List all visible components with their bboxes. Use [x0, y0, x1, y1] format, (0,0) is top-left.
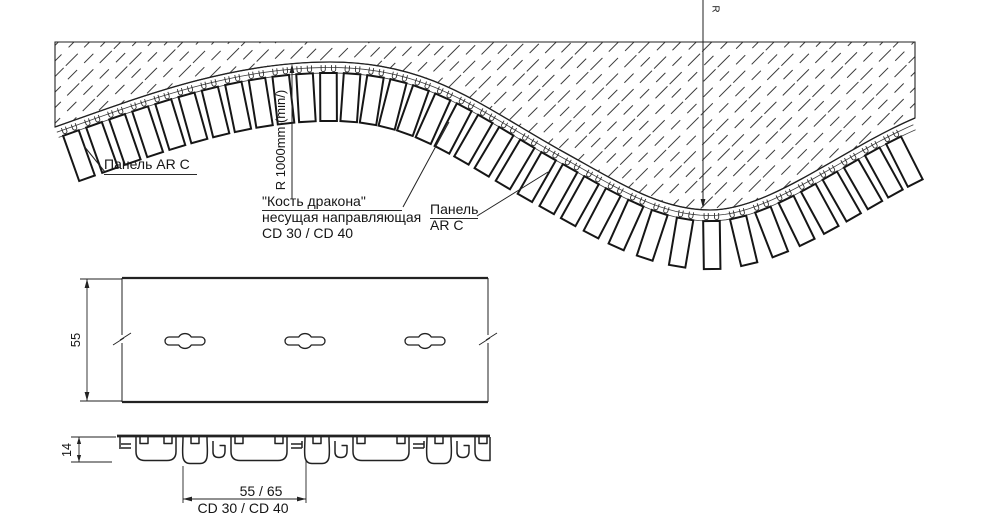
label-panel-left: Панель AR C	[104, 156, 197, 175]
panel	[637, 210, 668, 261]
clip-hook	[307, 65, 312, 72]
dimension-plan-height: 55	[68, 333, 84, 347]
clip-hook	[345, 65, 350, 72]
clip-hook	[71, 123, 77, 131]
clip-hook	[893, 130, 900, 138]
clip-hook	[402, 74, 408, 81]
clip-hook	[177, 88, 183, 95]
clip-hook	[468, 102, 475, 110]
clip-hook	[663, 206, 669, 213]
clip-hook	[131, 102, 137, 109]
clip-hook	[84, 118, 90, 126]
clip-hook	[639, 197, 646, 205]
clip-hook	[437, 87, 443, 95]
clip-hook	[617, 187, 624, 195]
label-rail-desc: несущая направляющая	[262, 209, 421, 225]
clip-hook	[776, 194, 783, 202]
clip-hook	[108, 110, 114, 118]
clip-hook	[235, 74, 240, 81]
clip-hook	[704, 213, 708, 220]
clip-hook	[249, 72, 254, 79]
clip-hook	[331, 65, 335, 72]
dimension-section-width: 55 / 65	[240, 483, 283, 499]
clip-hook	[424, 82, 430, 90]
panel	[669, 218, 693, 268]
clip-hook	[187, 85, 193, 92]
clip-hook	[141, 99, 147, 106]
clip-hook	[201, 82, 207, 89]
clip-hook	[729, 211, 735, 218]
clip-hook	[368, 67, 373, 74]
clip-hook	[785, 189, 792, 197]
label-radius-mark: R	[707, 5, 723, 12]
label-rail-type: CD 30 / CD 40	[262, 225, 421, 241]
clip-hook	[871, 141, 878, 149]
clip-hook	[164, 92, 170, 99]
label-panel-right: Панель AR C	[430, 201, 478, 233]
dimension-section-depth: 14	[59, 443, 75, 457]
clip-hook	[653, 203, 659, 210]
label-rail-block: "Кость дракона" несущая направляющая CD …	[262, 193, 421, 241]
clip-hook	[883, 135, 890, 143]
clip-hook	[415, 78, 421, 86]
clip-hook	[753, 203, 759, 211]
clip-hook	[61, 127, 67, 135]
panel	[340, 73, 360, 122]
clip-hook	[739, 208, 745, 215]
clip-hook	[117, 107, 123, 115]
clip-hook	[763, 200, 769, 208]
drawing-sheet: Панель AR C "Кость дракона" несущая напр…	[0, 0, 1000, 525]
panel	[730, 216, 757, 267]
clip-hook	[678, 210, 683, 217]
clip-hook	[458, 97, 465, 105]
clip-hook	[688, 212, 693, 219]
clip-hook	[630, 193, 637, 201]
clip-hook	[355, 66, 360, 73]
clip-hook	[211, 79, 217, 86]
clip-hook	[154, 95, 160, 102]
panel	[225, 82, 251, 132]
clip-hook	[446, 91, 452, 99]
clip-hook	[94, 115, 100, 123]
panel	[249, 78, 273, 128]
clip-hook	[392, 72, 398, 79]
label-radius-min: R 1000mm (min/)	[273, 90, 289, 190]
clip-hook	[321, 65, 325, 72]
plan-view	[80, 278, 497, 402]
clip-hook	[259, 70, 264, 77]
label-panel-right-type: AR C	[430, 217, 478, 233]
panel	[320, 73, 337, 121]
panel	[296, 73, 315, 122]
clip-hook	[225, 76, 230, 83]
clip-hook	[379, 69, 384, 76]
clip-hook	[714, 213, 718, 220]
label-profile-type: CD 30 / CD 40	[197, 500, 288, 516]
clip-hook	[283, 67, 288, 74]
drawing-canvas	[0, 0, 1000, 525]
clip-hook	[273, 68, 278, 75]
clip-hook	[297, 66, 302, 73]
panel	[703, 221, 720, 269]
panel	[202, 87, 230, 138]
